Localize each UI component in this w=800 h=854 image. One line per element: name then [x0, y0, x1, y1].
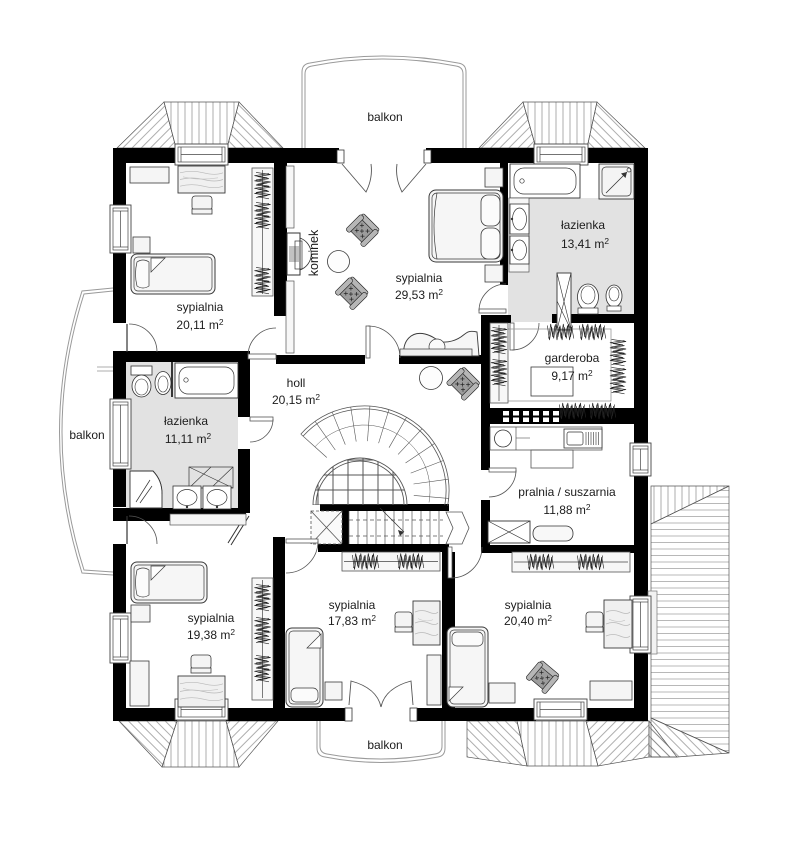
svg-text:łazienka: łazienka — [561, 218, 605, 232]
svg-text:20,15 m2: 20,15 m2 — [272, 392, 320, 407]
svg-text:balkon: balkon — [367, 738, 402, 752]
svg-text:holl: holl — [287, 376, 306, 390]
svg-text:11,88 m2: 11,88 m2 — [543, 502, 590, 517]
svg-text:kominek: kominek — [307, 229, 321, 276]
svg-text:sypialnia: sypialnia — [396, 271, 443, 285]
svg-text:9,17 m2: 9,17 m2 — [551, 368, 593, 383]
svg-text:20,11 m2: 20,11 m2 — [176, 317, 223, 332]
svg-text:balkon: balkon — [69, 428, 104, 442]
svg-text:29,53 m2: 29,53 m2 — [395, 287, 443, 302]
svg-text:sypialnia: sypialnia — [329, 598, 376, 612]
svg-text:balkon: balkon — [367, 110, 402, 124]
svg-text:sypialnia: sypialnia — [188, 611, 235, 625]
svg-text:13,41 m2: 13,41 m2 — [561, 236, 609, 251]
svg-text:sypialnia: sypialnia — [177, 300, 224, 314]
svg-text:17,83 m2: 17,83 m2 — [328, 613, 376, 628]
svg-text:łazienka: łazienka — [164, 414, 208, 428]
svg-text:sypialnia: sypialnia — [505, 598, 552, 612]
svg-text:garderoba: garderoba — [545, 351, 600, 365]
svg-text:11,11 m2: 11,11 m2 — [165, 431, 212, 446]
svg-text:20,40 m2: 20,40 m2 — [504, 613, 552, 628]
svg-text:19,38 m2: 19,38 m2 — [187, 627, 235, 642]
svg-text:pralnia / suszarnia: pralnia / suszarnia — [518, 485, 616, 499]
